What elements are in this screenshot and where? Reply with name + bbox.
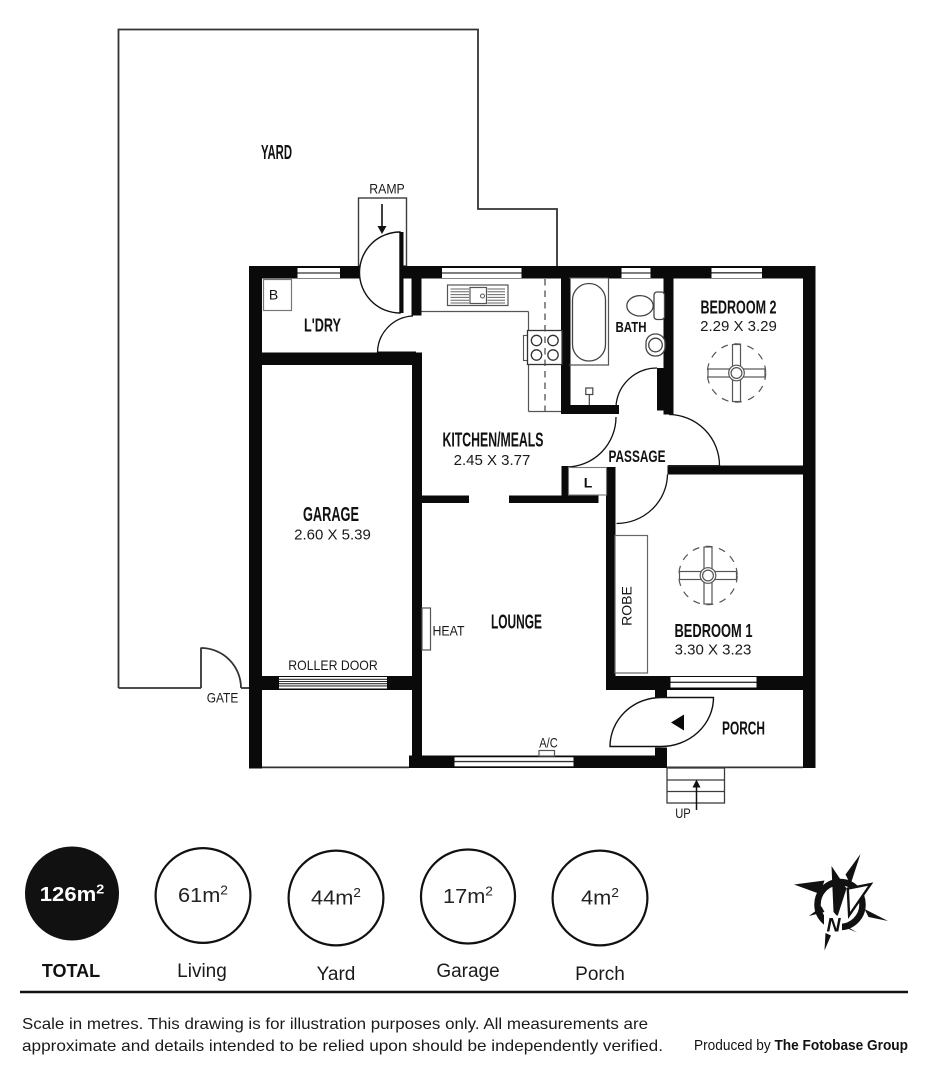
svg-text:RAMP: RAMP	[369, 181, 405, 197]
svg-text:Garage: Garage	[436, 961, 499, 982]
svg-text:Scale in metres. This drawing: Scale in metres. This drawing is for ill…	[22, 1016, 648, 1033]
svg-text:N: N	[826, 915, 841, 937]
svg-text:LOUNGE: LOUNGE	[491, 612, 542, 634]
svg-text:PORCH: PORCH	[722, 719, 765, 739]
svg-text:126m2: 126m2	[40, 882, 105, 907]
svg-text:KITCHEN/MEALS: KITCHEN/MEALS	[443, 430, 544, 452]
svg-text:approximate and details intend: approximate and details intended to be r…	[22, 1038, 663, 1055]
svg-text:L: L	[584, 475, 593, 491]
svg-text:GATE: GATE	[207, 690, 239, 706]
svg-text:A/C: A/C	[539, 735, 558, 751]
svg-text:BATH: BATH	[616, 319, 647, 336]
svg-text:Porch: Porch	[575, 964, 625, 985]
svg-text:3.30 X 3.23: 3.30 X 3.23	[675, 642, 752, 659]
svg-text:BEDROOM 1: BEDROOM 1	[675, 621, 753, 641]
svg-text:ROBE: ROBE	[619, 586, 635, 626]
svg-text:2.29 X 3.29: 2.29 X 3.29	[700, 318, 777, 335]
svg-text:2.45 X 3.77: 2.45 X 3.77	[454, 452, 531, 469]
svg-text:HEAT: HEAT	[433, 623, 465, 639]
svg-text:B: B	[269, 287, 278, 303]
svg-text:TOTAL: TOTAL	[42, 961, 100, 981]
svg-text:Produced by The Fotobase Group: Produced by The Fotobase Group	[694, 1037, 908, 1054]
svg-text:L'DRY: L'DRY	[304, 316, 341, 336]
svg-text:Living: Living	[177, 961, 227, 982]
svg-text:2.60 X 5.39: 2.60 X 5.39	[294, 527, 371, 544]
svg-text:ROLLER DOOR: ROLLER DOOR	[288, 657, 378, 673]
svg-text:BEDROOM 2: BEDROOM 2	[701, 298, 777, 318]
svg-text:UP: UP	[675, 805, 691, 821]
svg-text:YARD: YARD	[261, 142, 292, 164]
svg-text:GARAGE: GARAGE	[303, 504, 359, 526]
svg-text:PASSAGE: PASSAGE	[609, 447, 666, 466]
svg-text:Yard: Yard	[317, 964, 356, 985]
